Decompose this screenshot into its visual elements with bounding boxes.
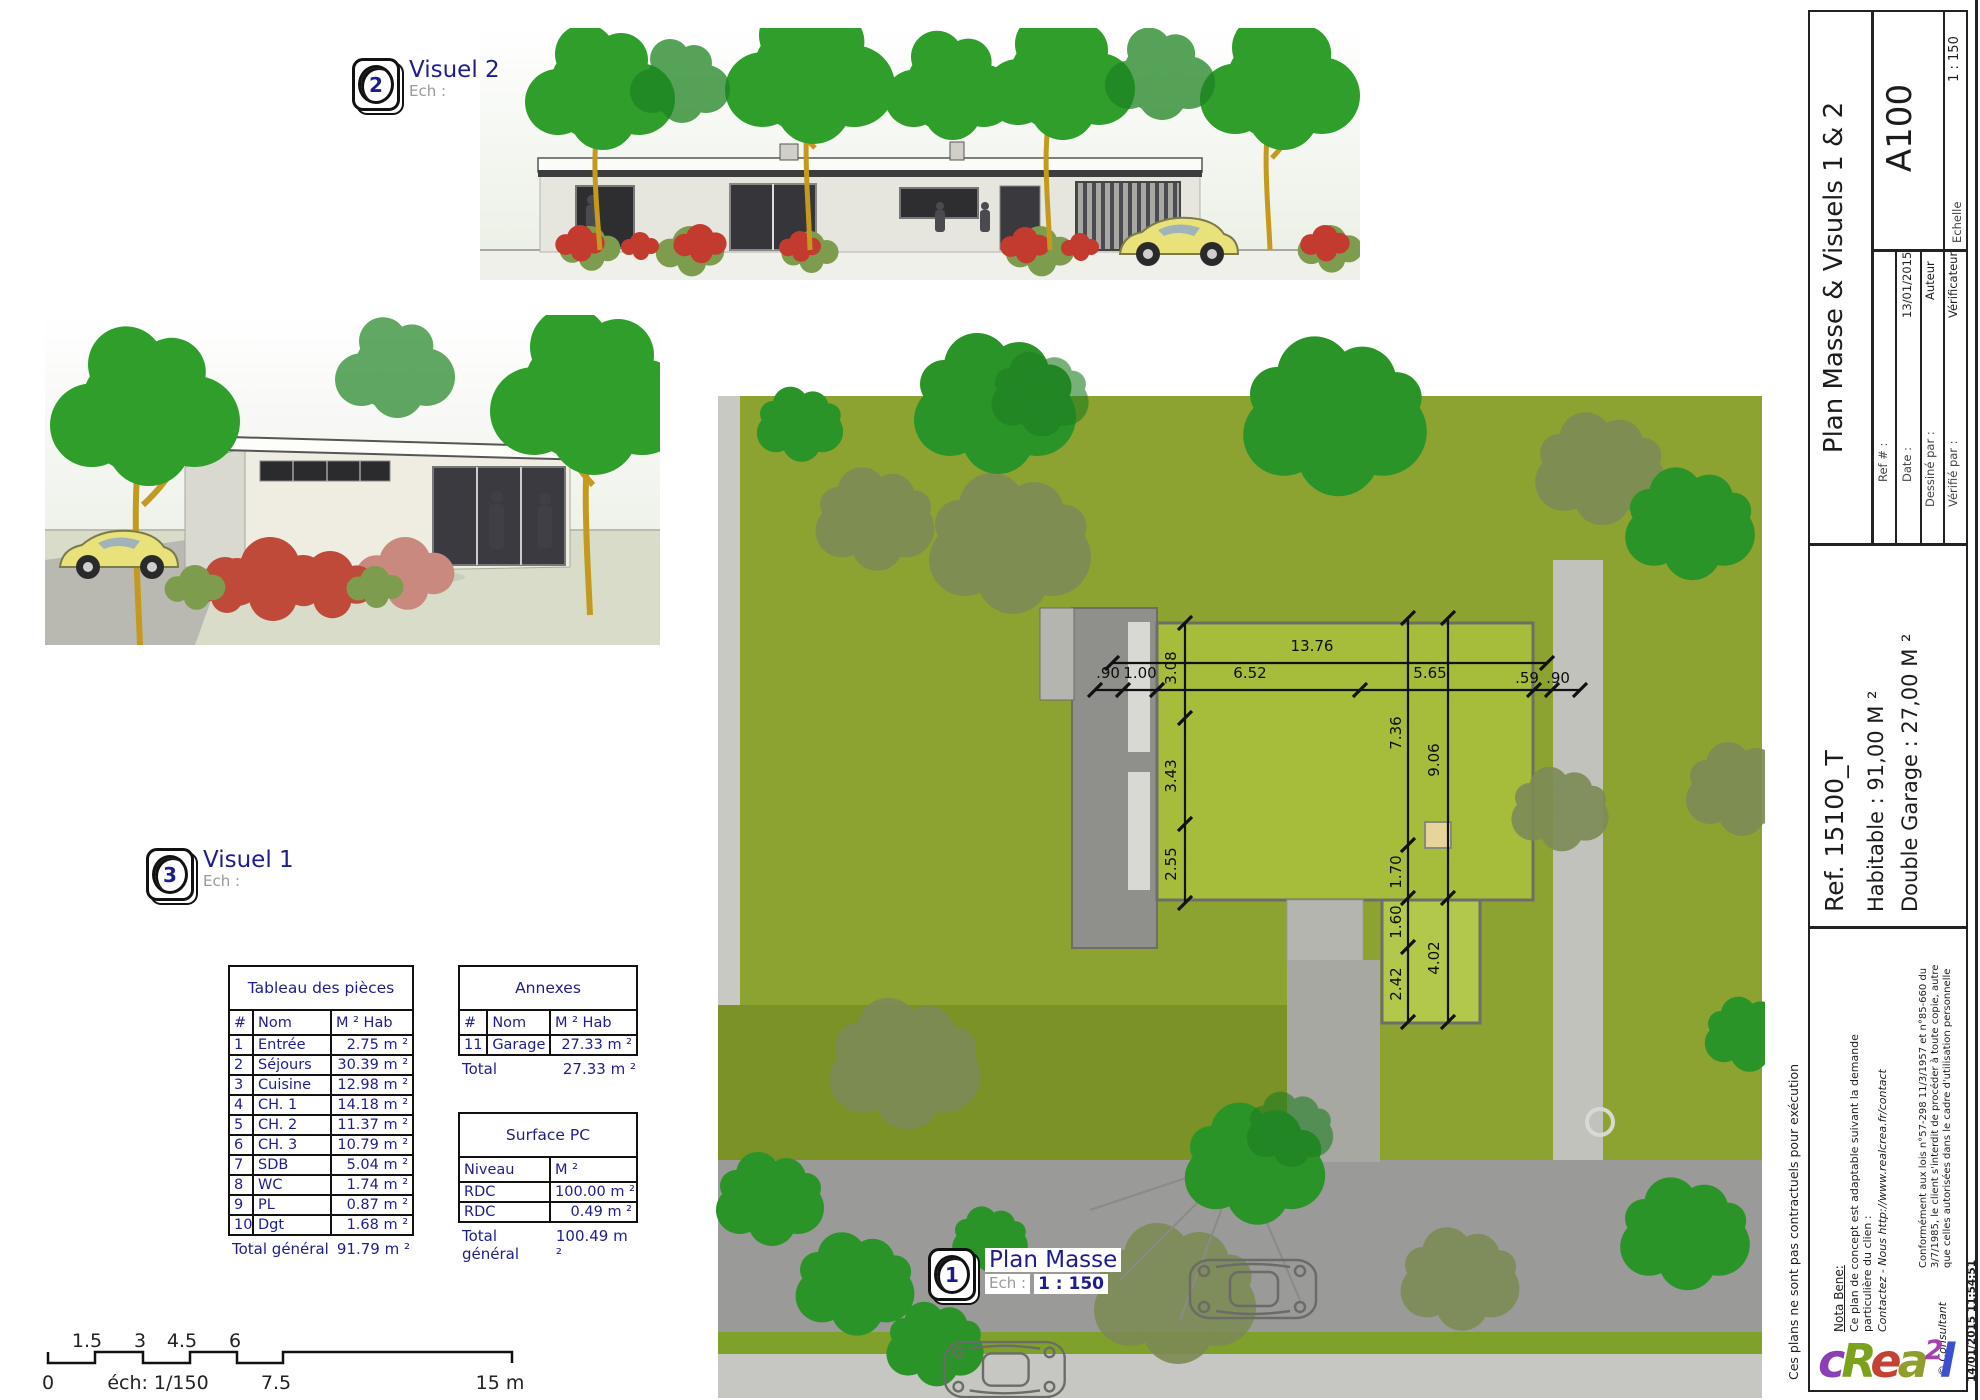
legal-line2: 3/7/1985, le client s'interdit de procéd… xyxy=(1930,968,1941,1268)
table-cell: RDC xyxy=(459,1202,550,1222)
dimension-label: 5.65 xyxy=(1413,664,1446,682)
nota-bene-line2: particulière du clien : xyxy=(1861,1192,1874,1332)
logo-letter: c xyxy=(1818,1334,1841,1388)
table-cell: 12.98 m ² xyxy=(331,1075,413,1095)
dimension-label: 9.06 xyxy=(1425,743,1443,776)
timestamp: 14/01/2015 11:54:51 xyxy=(1966,1262,1978,1382)
nota-bene-line1: Ce plan de concept est adaptable suivant… xyxy=(1848,1012,1861,1332)
plan-masse-scale-label: Ech : xyxy=(985,1274,1030,1294)
visual-1-render xyxy=(45,315,660,645)
column-header: Nom xyxy=(253,1010,331,1035)
table-cell: 6 xyxy=(229,1135,253,1155)
drawn-by-value: Auteur xyxy=(1923,240,1937,300)
table-cell: 4 xyxy=(229,1095,253,1115)
column-header: M ² Hab xyxy=(550,1010,637,1035)
column-header: Niveau xyxy=(459,1157,550,1182)
callout-plan-masse: 1 Plan Masse Ech : 1 : 150 xyxy=(928,1248,1121,1301)
table-total: Total27.33 m ² xyxy=(458,1056,638,1078)
callout-visuel-2: 2 Visuel 2 Ech : xyxy=(352,58,500,111)
visual-2-title: Visuel 2 xyxy=(409,58,500,82)
table-cell: CH. 3 xyxy=(253,1135,331,1155)
ref-label: Ref # : xyxy=(1876,422,1890,482)
sheet-number: A100 xyxy=(1880,18,1920,238)
drawing-sheet: 2 Visuel 2 Ech : xyxy=(0,0,1980,1400)
column-header: M ² xyxy=(550,1157,637,1182)
callout-number-icon: 1 xyxy=(928,1248,976,1301)
scale-bar-label: 6 xyxy=(229,1330,241,1352)
callout-visuel-1: 3 Visuel 1 Ech : xyxy=(146,848,294,901)
column-header: # xyxy=(229,1010,253,1035)
table-cell: 0.49 m ² xyxy=(550,1202,637,1222)
table-row: 7SDB5.04 m ² xyxy=(229,1155,413,1175)
table-total: Total général100.49 m ² xyxy=(458,1223,638,1263)
visual-2-render xyxy=(480,28,1360,280)
project-ref: Ref. 15100_T xyxy=(1820,747,1849,912)
table-annexes: Annexes#NomM ² Hab11Garage27.33 m ²Total… xyxy=(458,965,638,1078)
table-cell: 0.87 m ² xyxy=(331,1195,413,1215)
column-header: # xyxy=(459,1010,487,1035)
table-cell: 14.18 m ² xyxy=(331,1095,413,1115)
table-cell: 2 xyxy=(229,1055,253,1075)
table-cell: 5 xyxy=(229,1115,253,1135)
dimension-label: 7.36 xyxy=(1387,716,1405,749)
table-cell: Cuisine xyxy=(253,1075,331,1095)
title-block-title: Plan Masse & Visuels 1 & 2 xyxy=(1819,15,1849,540)
table-cell: Séjours xyxy=(253,1055,331,1075)
table-cell: 1 xyxy=(229,1035,253,1055)
table-cell: 30.39 m ² xyxy=(331,1055,413,1075)
logo-letter: e xyxy=(1870,1334,1897,1388)
table-cell: 7 xyxy=(229,1155,253,1175)
table-row: RDC0.49 m ² xyxy=(459,1202,637,1222)
table-cell: 11.37 m ² xyxy=(331,1115,413,1135)
sidewalk xyxy=(718,1354,1762,1398)
table-cell: 27.33 m ² xyxy=(550,1035,637,1055)
table-cell: Entrée xyxy=(253,1035,331,1055)
callout-number-icon: 2 xyxy=(352,58,400,111)
table-row: 2Séjours30.39 m ² xyxy=(229,1055,413,1075)
table-row: 9PL0.87 m ² xyxy=(229,1195,413,1215)
column-header: M ² Hab xyxy=(331,1010,413,1035)
table-row: 8WC1.74 m ² xyxy=(229,1175,413,1195)
visual-1-scale-label: Ech : xyxy=(203,872,294,890)
table-cell: SDB xyxy=(253,1155,331,1175)
garage-area: Double Garage : 27,00 M ² xyxy=(1898,612,1922,912)
dimension-label: 3.08 xyxy=(1162,651,1180,684)
contact-url: Contactez - Nous http://www.realcrea.fr/… xyxy=(1876,1042,1889,1332)
date-label: Date : xyxy=(1900,427,1914,482)
column-header: Nom xyxy=(487,1010,550,1035)
table-cell: 3 xyxy=(229,1075,253,1095)
nota-bene-title: Nota Bene: xyxy=(1832,1237,1846,1332)
scale-bar-label: 3 xyxy=(134,1330,146,1352)
table-row: 10Dgt1.68 m ² xyxy=(229,1215,413,1235)
dimension-label: .90 xyxy=(1096,664,1120,682)
table-title: Tableau des pièces xyxy=(229,966,413,1010)
scale-bar-label: 0 xyxy=(42,1372,54,1394)
table-cell: 1.74 m ² xyxy=(331,1175,413,1195)
table-cell: 10.79 m ² xyxy=(331,1135,413,1155)
checked-by-value: Vérificateur xyxy=(1946,226,1960,318)
plan-masse-scale-value: 1 : 150 xyxy=(1034,1274,1108,1294)
table-row: 1Entrée2.75 m ² xyxy=(229,1035,413,1055)
dimension-label: 4.02 xyxy=(1425,941,1443,974)
table-cell: PL xyxy=(253,1195,331,1215)
table-row: 4CH. 114.18 m ² xyxy=(229,1095,413,1115)
table-cell: 9 xyxy=(229,1195,253,1215)
sheet-edge xyxy=(1975,0,1978,1400)
dimension-label: .59 xyxy=(1515,669,1539,687)
dimension-label: 2.42 xyxy=(1387,967,1405,1000)
callout-number: 1 xyxy=(934,1255,970,1294)
table-cell: Garage xyxy=(487,1035,550,1055)
main-roof xyxy=(1157,623,1533,900)
dimension-label: 13.76 xyxy=(1291,637,1334,655)
checked-by-label: Vérifié par : xyxy=(1946,425,1960,507)
scale-bar-label: 15 m xyxy=(476,1372,525,1394)
plan-masse-drawing xyxy=(713,318,1765,1398)
table-cell: 11 xyxy=(459,1035,487,1055)
crea2l-logo: cRea2l xyxy=(1818,1334,1951,1388)
plan-masse-title: Plan Masse xyxy=(985,1248,1121,1272)
scale-bar-label: 4.5 xyxy=(167,1330,197,1352)
dimension-label: 3.43 xyxy=(1162,759,1180,792)
dimension-label: .90 xyxy=(1546,669,1570,687)
drawn-by-label: Dessiné par : xyxy=(1923,419,1937,507)
scale-bar-label: 1.5 xyxy=(72,1330,102,1352)
table-cell: CH. 2 xyxy=(253,1115,331,1135)
scale-bar-label: éch: 1/150 xyxy=(107,1372,208,1394)
scale-value: 1 : 150 xyxy=(1947,23,1962,95)
date-value: 13/01/2015 xyxy=(1900,230,1914,318)
table-cell: RDC xyxy=(459,1182,550,1202)
table-surface-pc: Surface PCNiveauM ²RDC100.00 m ²RDC0.49 … xyxy=(458,1112,638,1263)
table-total: Total général91.79 m ² xyxy=(228,1236,412,1258)
logo-letter: a xyxy=(1898,1334,1925,1388)
dimension-label: 1.60 xyxy=(1387,905,1405,938)
table-row: 5CH. 211.37 m ² xyxy=(229,1115,413,1135)
table-cell: 1.68 m ² xyxy=(331,1215,413,1235)
callout-number-icon: 3 xyxy=(146,848,194,901)
side-path xyxy=(1553,560,1603,1160)
legal-line3: que celles autorisées dans le cadre d'ut… xyxy=(1942,968,1953,1268)
table-cell: 5.04 m ² xyxy=(331,1155,413,1175)
table-cell: 10 xyxy=(229,1215,253,1235)
callout-number: 3 xyxy=(152,855,188,894)
table-row: RDC100.00 m ² xyxy=(459,1182,637,1202)
logo-letter: R xyxy=(1841,1334,1870,1388)
table-cell: Dgt xyxy=(253,1215,331,1235)
table-title: Surface PC xyxy=(459,1113,637,1157)
dimension-label: 6.52 xyxy=(1233,664,1266,682)
table-row: 11Garage27.33 m ² xyxy=(459,1035,637,1055)
table-cell: 100.00 m ² xyxy=(550,1182,637,1202)
table-row: 6CH. 310.79 m ² xyxy=(229,1135,413,1155)
visual-2-scale-label: Ech : xyxy=(409,82,500,100)
table-tableau-des-pieces: Tableau des pièces#NomM ² Hab1Entrée2.75… xyxy=(228,965,412,1258)
table-cell: 8 xyxy=(229,1175,253,1195)
dimension-label: 1.00 xyxy=(1123,664,1156,682)
table-cell: 2.75 m ² xyxy=(331,1035,413,1055)
table-cell: CH. 1 xyxy=(253,1095,331,1115)
disclaimer: Ces plans ne sont pas contractuels pour … xyxy=(1786,1040,1801,1380)
table-cell: WC xyxy=(253,1175,331,1195)
legal-line1: Conformément aux lois n°57-298 11/3/1957… xyxy=(1918,968,1929,1268)
table-row: 3Cuisine12.98 m ² xyxy=(229,1075,413,1095)
dimension-label: 2.55 xyxy=(1162,847,1180,880)
table-title: Annexes xyxy=(459,966,637,1010)
scale-bar-label: 7.5 xyxy=(261,1372,291,1394)
dimension-label: 1.70 xyxy=(1387,855,1405,888)
logo-letter: l xyxy=(1939,1334,1951,1388)
logo-letter: 2 xyxy=(1925,1335,1940,1366)
habitable-area: Habitable : 91,00 M ² xyxy=(1864,657,1888,912)
callout-number: 2 xyxy=(358,65,394,104)
visual-1-title: Visuel 1 xyxy=(203,848,294,872)
